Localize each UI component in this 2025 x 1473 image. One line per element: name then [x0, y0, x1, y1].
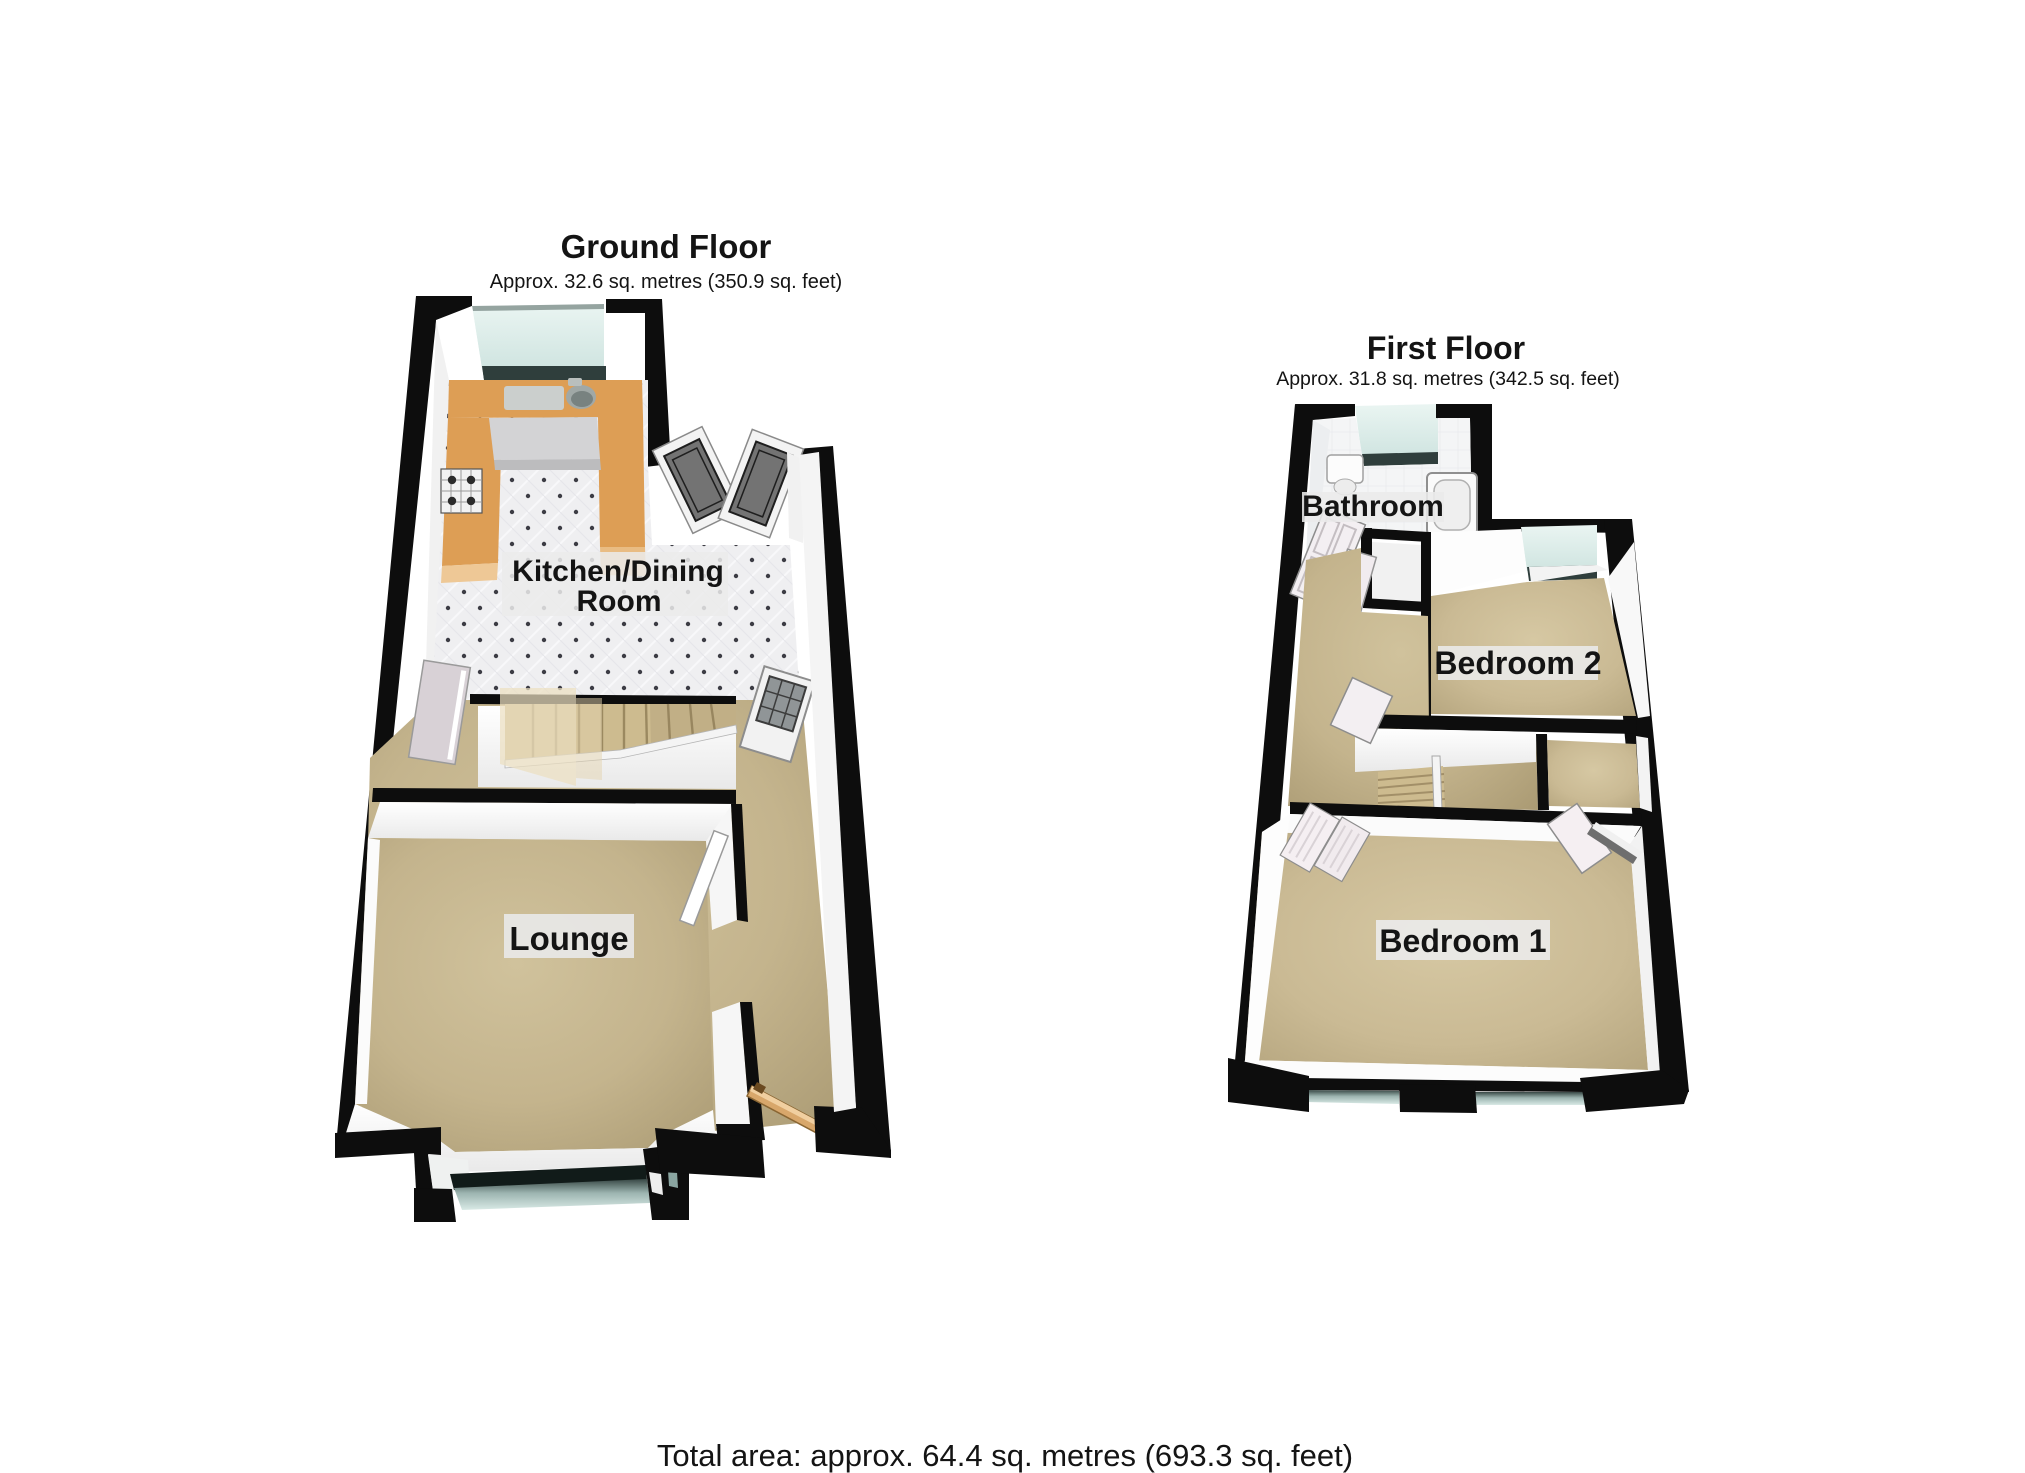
- svg-text:Bathroom: Bathroom: [1302, 490, 1444, 523]
- svg-text:Total area: approx. 64.4 sq. m: Total area: approx. 64.4 sq. metres (693…: [657, 1438, 1353, 1473]
- svg-text:Kitchen/Dining: Kitchen/Dining: [512, 555, 724, 588]
- svg-text:Bedroom 2: Bedroom 2: [1434, 645, 1601, 681]
- svg-text:Room: Room: [577, 585, 662, 618]
- svg-text:Bedroom 1: Bedroom 1: [1379, 923, 1546, 959]
- svg-text:Lounge: Lounge: [509, 920, 628, 957]
- svg-text:Ground Floor: Ground Floor: [561, 228, 772, 265]
- svg-text:Approx. 31.8 sq. metres (342.5: Approx. 31.8 sq. metres (342.5 sq. feet): [1276, 368, 1620, 390]
- svg-text:Approx. 32.6 sq. metres (350.9: Approx. 32.6 sq. metres (350.9 sq. feet): [490, 271, 842, 293]
- svg-text:First Floor: First Floor: [1367, 330, 1525, 366]
